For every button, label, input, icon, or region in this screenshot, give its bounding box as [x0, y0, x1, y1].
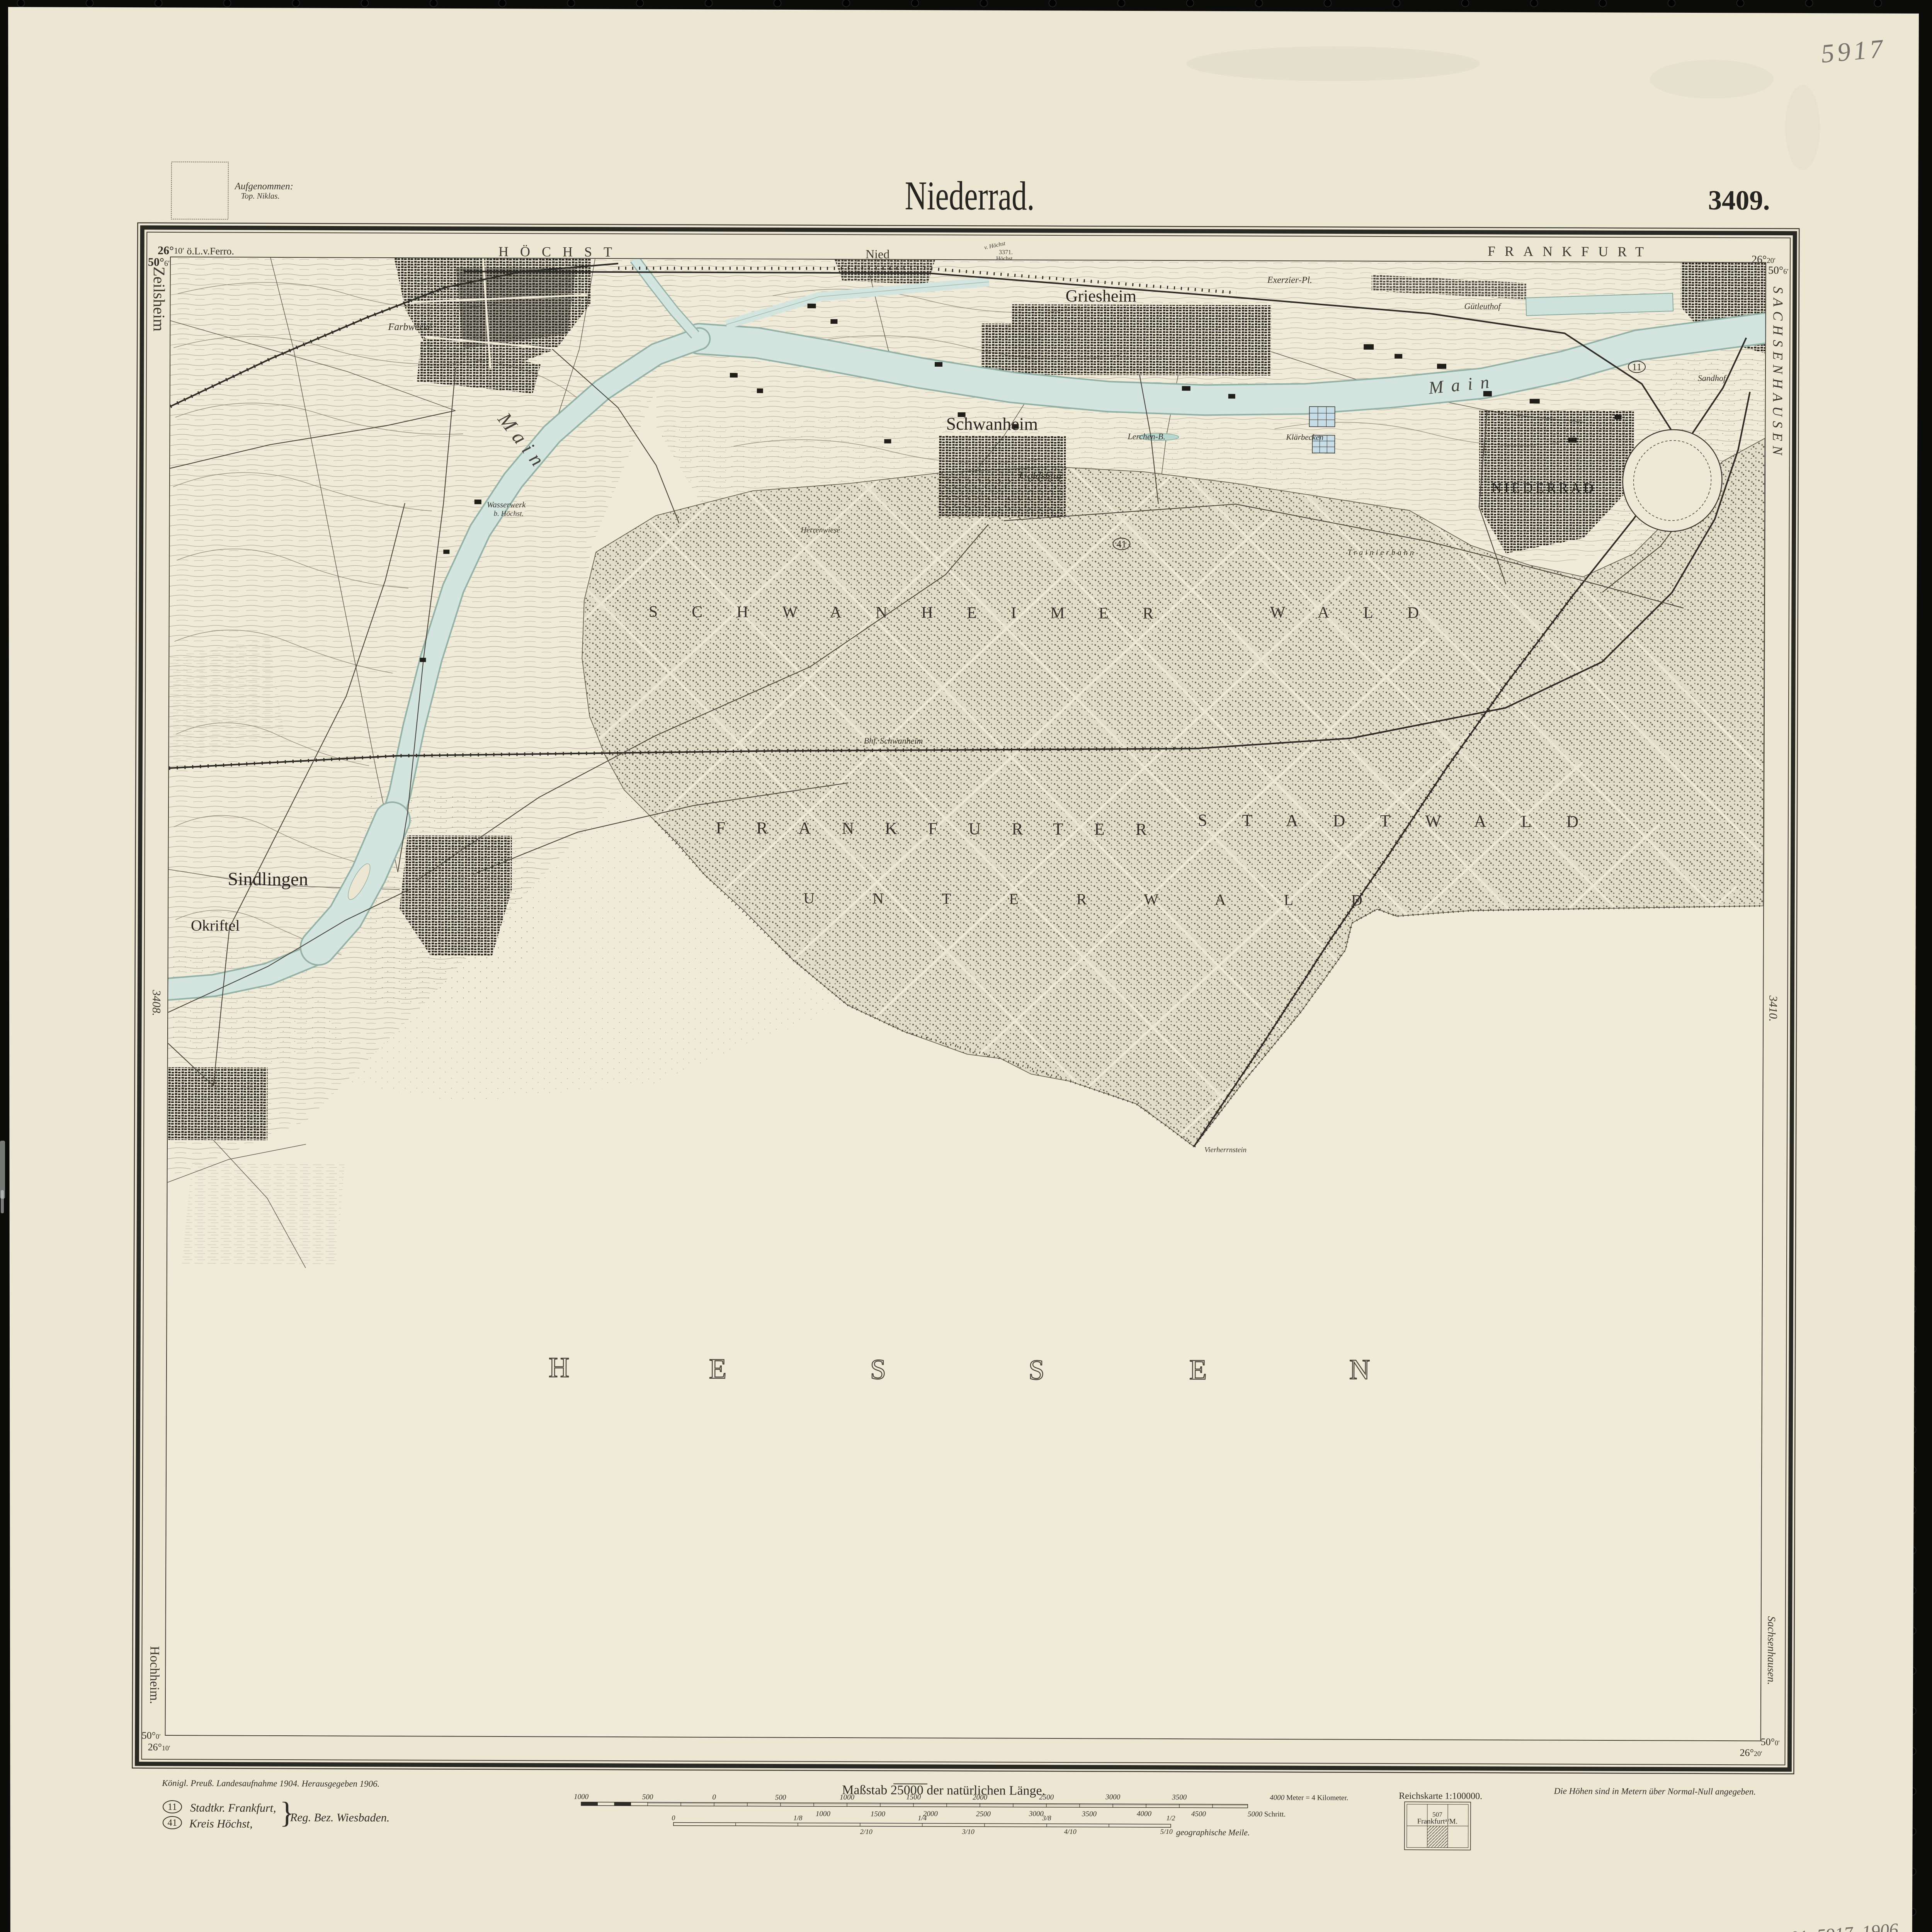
svg-text:S: S	[1029, 1354, 1044, 1386]
svg-text:2/10: 2/10	[860, 1828, 872, 1835]
svg-text:Reichskarte 1:100000.: Reichskarte 1:100000.	[1399, 1791, 1482, 1801]
svg-text:2500: 2500	[1039, 1793, 1054, 1801]
svg-text:Wasserwerk: Wasserwerk	[487, 500, 526, 509]
svg-text:Trainierbahn: Trainierbahn	[1347, 548, 1416, 557]
svg-text:SCHWANHEIMER: SCHWANHEIMER	[649, 603, 1187, 622]
svg-text:1500: 1500	[871, 1810, 886, 1818]
svg-text:1/4: 1/4	[918, 1814, 927, 1822]
svg-text:3500: 3500	[1172, 1793, 1187, 1801]
svg-text:0: 0	[712, 1793, 716, 1801]
svg-text:500: 500	[642, 1793, 653, 1801]
svg-text:Nied: Nied	[866, 247, 889, 261]
svg-text:41: 41	[1116, 539, 1126, 550]
svg-text:HÖCHST: HÖCHST	[498, 244, 624, 260]
svg-text:3000: 3000	[1029, 1810, 1044, 1818]
svg-text:Farbwerke: Farbwerke	[388, 321, 432, 332]
svg-text:500: 500	[775, 1793, 786, 1801]
svg-text:SACHSENHAUSEN: SACHSENHAUSEN	[1770, 286, 1786, 459]
svg-text:Klärbecken: Klärbecken	[1286, 432, 1323, 442]
svg-text:1000: 1000	[574, 1793, 589, 1801]
svg-text:4000: 4000	[1137, 1810, 1152, 1818]
svg-text:Top. Niklas.: Top. Niklas.	[241, 191, 280, 201]
svg-text:E: E	[709, 1353, 726, 1385]
svg-text:Königl. Preuß. Landesaufnahme: Königl. Preuß. Landesaufnahme 1904. Hera…	[162, 1778, 379, 1789]
svg-text:FRANKFURT: FRANKFURT	[1488, 243, 1653, 259]
svg-text:Die Höhen sind in Metern über: Die Höhen sind in Metern über Normal-Nul…	[1554, 1786, 1756, 1797]
svg-text:4/10: 4/10	[1064, 1828, 1077, 1835]
svg-text:Gütleuthof: Gütleuthof	[1464, 301, 1502, 311]
svg-text:5/10: 5/10	[1160, 1828, 1173, 1835]
svg-text:Schwanheim: Schwanheim	[946, 414, 1038, 434]
svg-text:Goldstein: Goldstein	[1019, 470, 1061, 482]
svg-text:3000: 3000	[1105, 1793, 1121, 1801]
svg-text:UNTERWALD: UNTERWALD	[803, 889, 1420, 909]
svg-text:Stadtkr. Frankfurt,: Stadtkr. Frankfurt,	[190, 1801, 276, 1815]
svg-text:Niederrad.: Niederrad.	[905, 173, 1034, 219]
svg-text:Zeilsheim: Zeilsheim	[150, 267, 168, 332]
svg-text:1000: 1000	[840, 1793, 855, 1801]
svg-text:0: 0	[672, 1814, 675, 1822]
svg-text:Sachsenhausen.: Sachsenhausen.	[1765, 1616, 1777, 1685]
svg-text:26°10′ ö.L.v.Ferro.: 26°10′ ö.L.v.Ferro.	[158, 244, 234, 257]
svg-text:5917: 5917	[1820, 34, 1887, 68]
svg-text:b. Höchst.: b. Höchst.	[494, 510, 524, 518]
svg-text:2500: 2500	[976, 1810, 991, 1818]
svg-text:Griesheim: Griesheim	[1066, 286, 1136, 306]
svg-text:Aufgenommen:: Aufgenommen:	[234, 181, 293, 192]
svg-text:3500: 3500	[1082, 1810, 1097, 1818]
svg-text:E: E	[1189, 1354, 1207, 1386]
svg-text:Lerchen-B.: Lerchen-B.	[1127, 432, 1165, 441]
svg-text:WALD: WALD	[1270, 604, 1453, 622]
svg-text:NIEDERRAD: NIEDERRAD	[1492, 480, 1596, 496]
svg-text:Hochheim.: Hochheim.	[147, 1646, 162, 1704]
svg-text:Sandhof: Sandhof	[1698, 373, 1727, 383]
svg-text:3409.: 3409.	[1708, 185, 1770, 216]
svg-text:Reg. Bez. Wiesbaden.: Reg. Bez. Wiesbaden.	[290, 1811, 390, 1824]
svg-text:1500: 1500	[906, 1793, 921, 1801]
svg-text:Okriftel: Okriftel	[191, 917, 240, 934]
svg-text:FRANKFURTER: FRANKFURTER	[716, 818, 1178, 839]
svg-text:STADTWALD: STADTWALD	[1198, 811, 1614, 831]
svg-text:N: N	[1349, 1354, 1370, 1386]
svg-text:3/8: 3/8	[1042, 1814, 1051, 1822]
svg-text:Vierherrnstein: Vierherrnstein	[1204, 1146, 1247, 1154]
svg-text:S: S	[870, 1354, 886, 1385]
svg-text:4500: 4500	[1191, 1810, 1206, 1818]
svg-text:1/8: 1/8	[793, 1814, 802, 1822]
svg-text:5000 Schritt.: 5000 Schritt.	[1248, 1810, 1286, 1818]
svg-text:3408.: 3408.	[150, 990, 163, 1016]
svg-text:41: 41	[167, 1818, 177, 1828]
svg-text:geographische Meile.: geographische Meile.	[1176, 1827, 1250, 1837]
svg-text:H: H	[549, 1352, 570, 1383]
svg-text:Sindlingen: Sindlingen	[228, 869, 308, 890]
svg-text:2000: 2000	[973, 1793, 988, 1801]
svg-text:1/2: 1/2	[1166, 1814, 1175, 1822]
svg-text:Maßstab 25000 der natürlichen: Maßstab 25000 der natürlichen Länge.	[842, 1783, 1045, 1798]
svg-text:1000: 1000	[816, 1810, 831, 1818]
svg-text:Herrenwiese: Herrenwiese	[801, 526, 840, 534]
svg-text:4000 Meter = 4 Kilometer.: 4000 Meter = 4 Kilometer.	[1270, 1794, 1348, 1802]
svg-text:Kreis Höchst,: Kreis Höchst,	[189, 1817, 253, 1830]
svg-text:Bhf. Schwanheim: Bhf. Schwanheim	[864, 736, 923, 746]
svg-text:Exerzier-Pl.: Exerzier-Pl.	[1267, 275, 1312, 285]
svg-text:3410.: 3410.	[1767, 995, 1779, 1022]
svg-text:3371.: 3371.	[999, 249, 1013, 255]
svg-text:11: 11	[168, 1802, 177, 1812]
svg-text:3/10: 3/10	[962, 1828, 975, 1835]
svg-text:Frankfurta/M.: Frankfurta/M.	[1417, 1817, 1458, 1825]
svg-text:11: 11	[1632, 361, 1641, 372]
